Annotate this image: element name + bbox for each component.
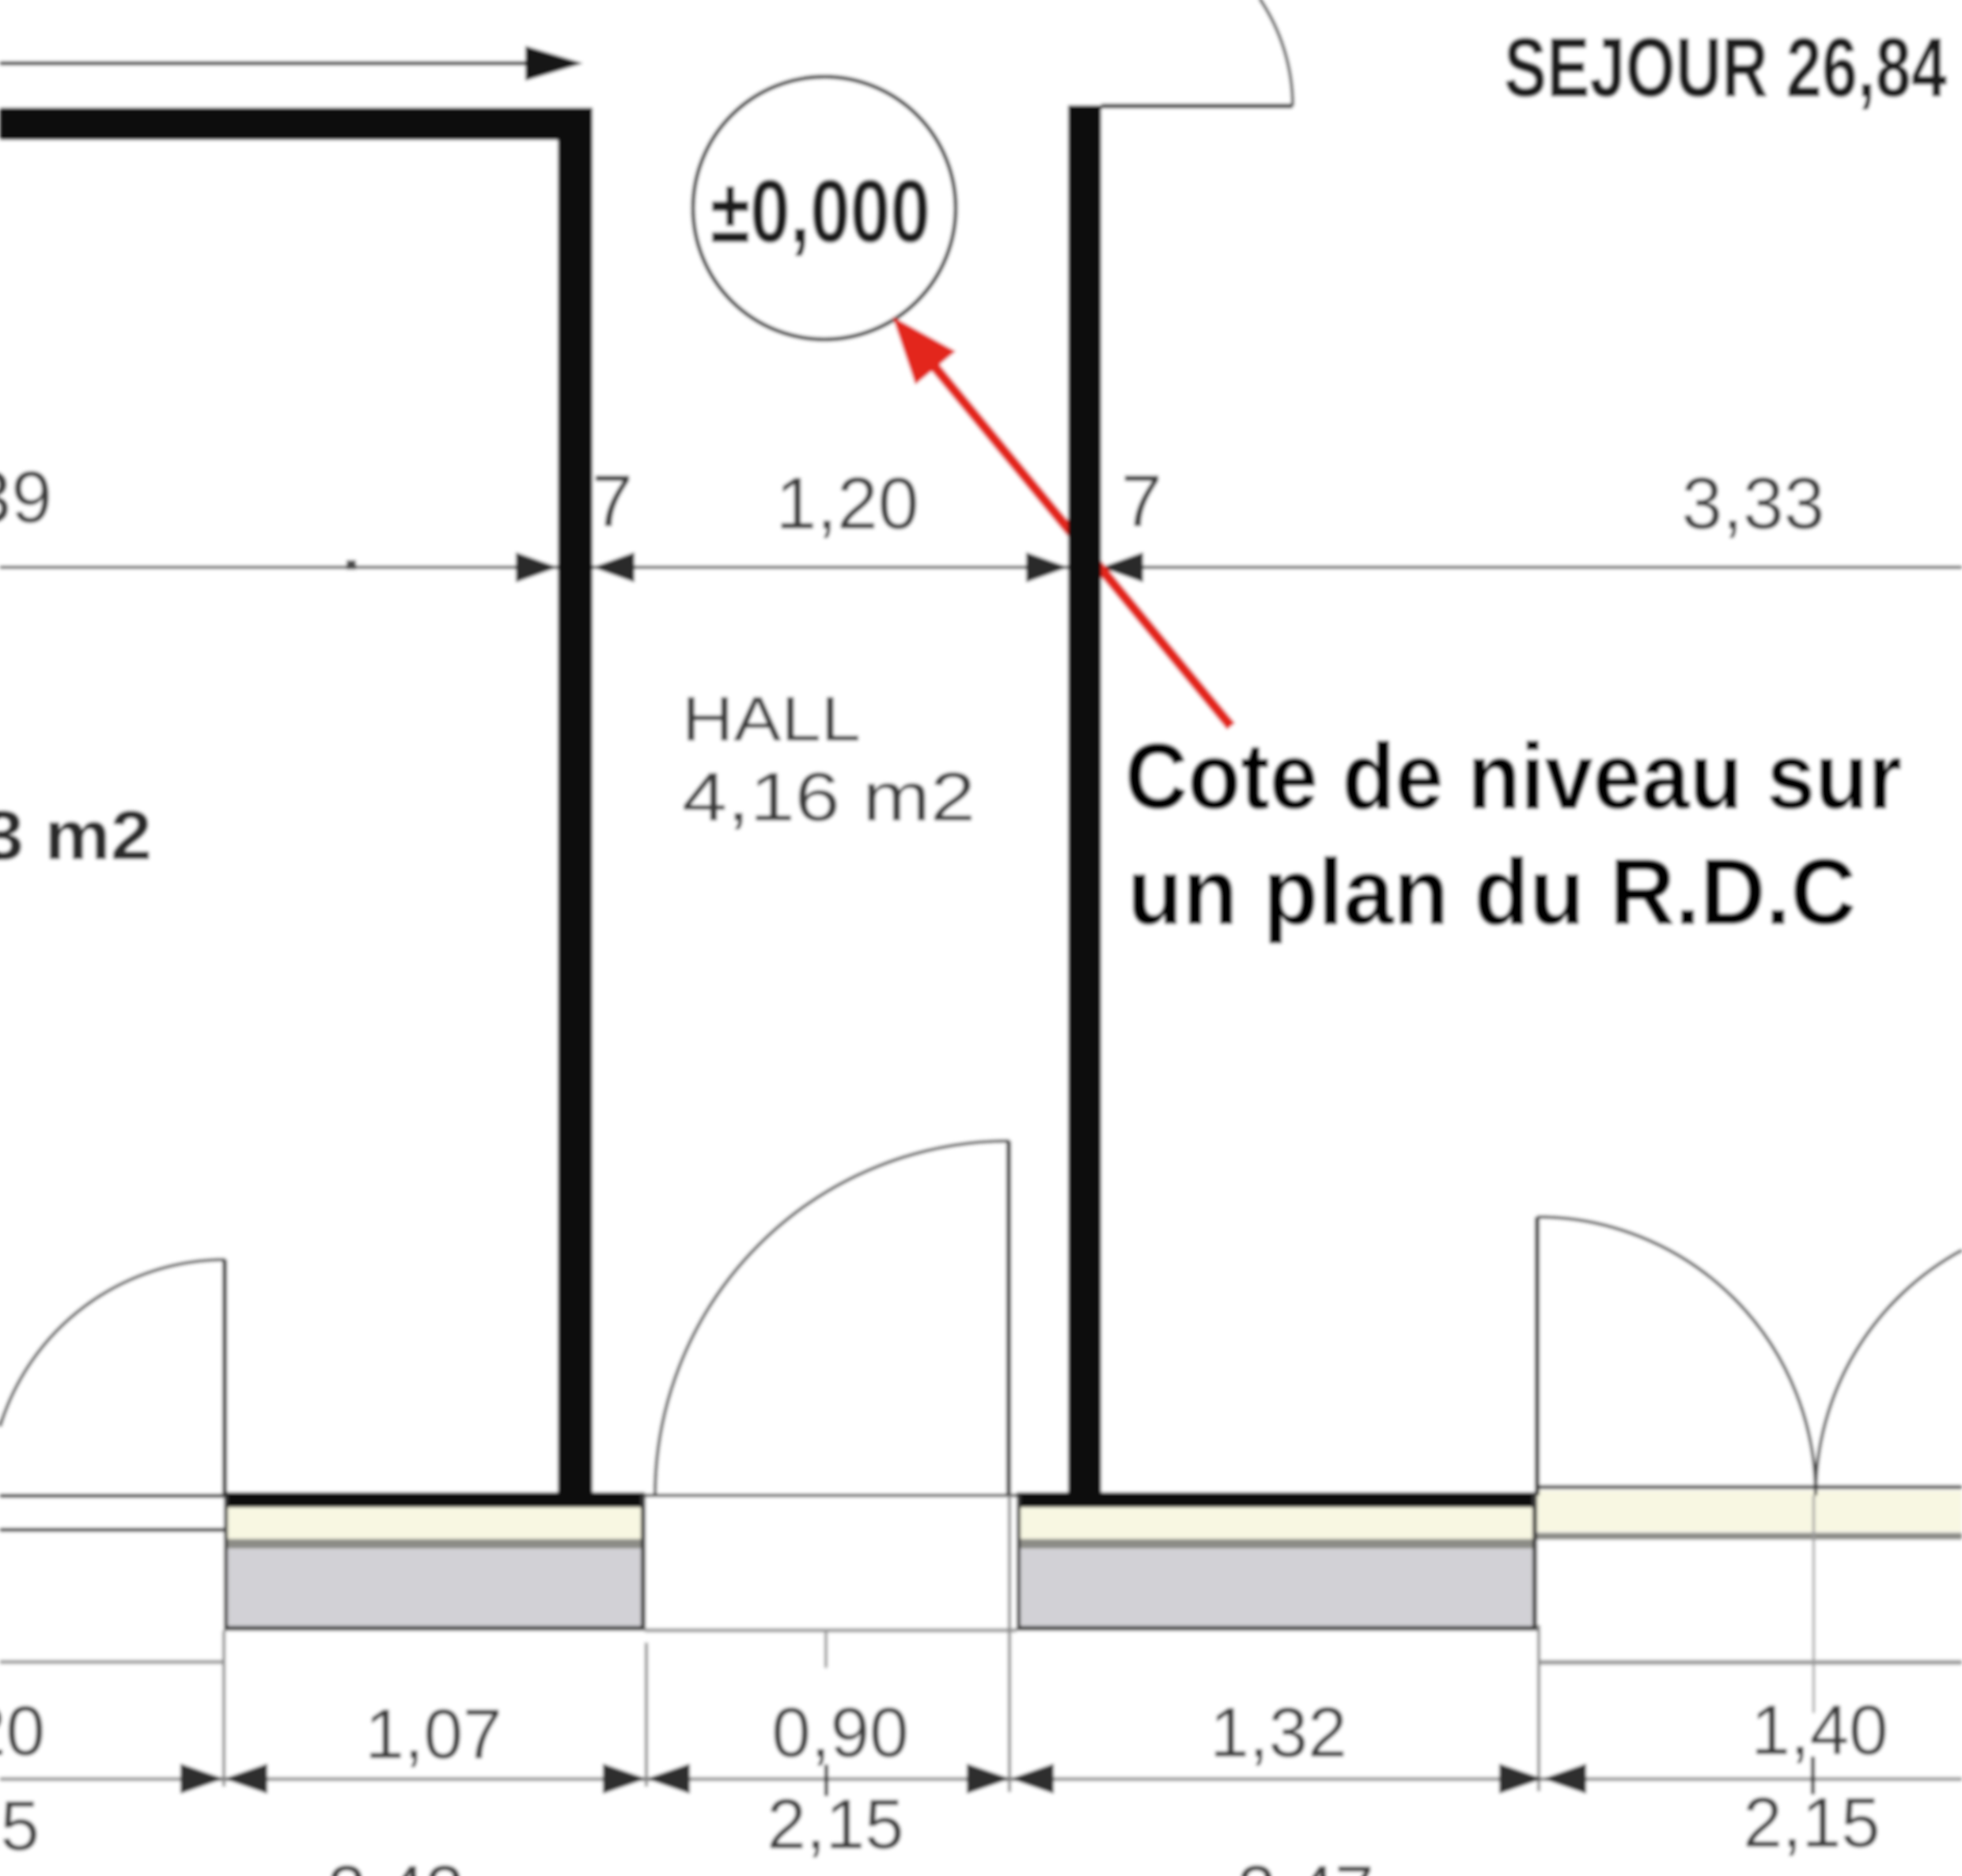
- svg-text:un plan du R.D.C: un plan du R.D.C: [1127, 839, 1856, 945]
- svg-text:0,90: 0,90: [771, 1692, 908, 1772]
- svg-text:39: 39: [0, 456, 52, 538]
- svg-text:7: 7: [592, 460, 633, 542]
- svg-text:4,16 m2: 4,16 m2: [682, 759, 975, 836]
- svg-text:20: 20: [0, 1691, 45, 1770]
- svg-text:15: 15: [0, 1786, 40, 1865]
- svg-text:SEJOUR 26,84: SEJOUR 26,84: [1504, 20, 1947, 115]
- svg-text:3,33: 3,33: [1681, 462, 1824, 544]
- svg-text:1,32: 1,32: [1210, 1692, 1347, 1772]
- svg-text:2,42: 2,42: [327, 1851, 464, 1876]
- svg-text:3 m2: 3 m2: [0, 796, 152, 874]
- svg-text:Cote de niveau sur: Cote de niveau sur: [1125, 724, 1902, 829]
- svg-text:±0,000: ±0,000: [710, 161, 930, 261]
- svg-text:7: 7: [1121, 460, 1162, 542]
- svg-text:2,47: 2,47: [1237, 1851, 1373, 1876]
- svg-text:2,15: 2,15: [1743, 1783, 1880, 1862]
- svg-text:1,07: 1,07: [365, 1694, 502, 1773]
- svg-text:HALL: HALL: [682, 684, 861, 754]
- svg-text:1,40: 1,40: [1751, 1690, 1888, 1769]
- svg-text:1,20: 1,20: [775, 462, 919, 544]
- svg-text:2,15: 2,15: [767, 1784, 903, 1863]
